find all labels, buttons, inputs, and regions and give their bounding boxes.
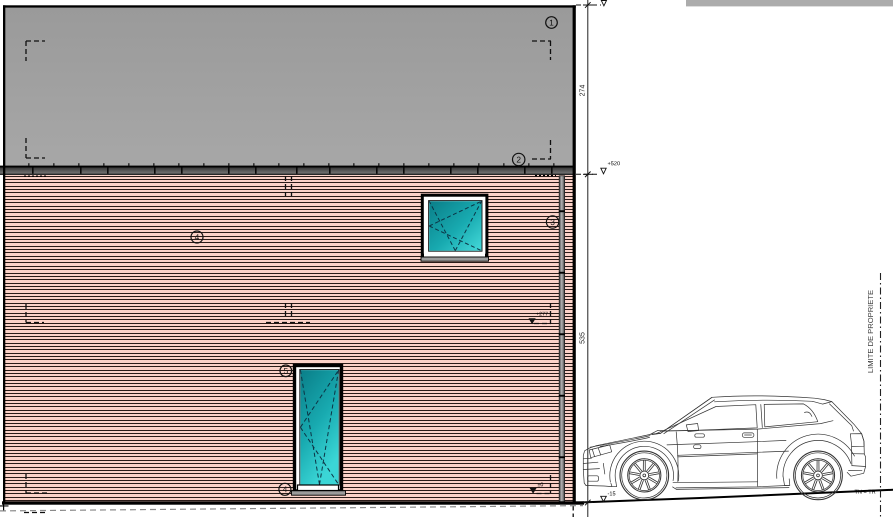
svg-text:+277: +277 xyxy=(536,312,548,318)
svg-text:-15: -15 xyxy=(607,491,615,497)
svg-text:4: 4 xyxy=(195,232,200,242)
svg-text:535: 535 xyxy=(580,332,587,344)
svg-text:3: 3 xyxy=(550,217,555,227)
svg-text:2: 2 xyxy=(516,154,521,164)
svg-text:4: 4 xyxy=(283,484,288,494)
svg-text:±0: ±0 xyxy=(537,482,543,488)
svg-text:+520: +520 xyxy=(607,161,620,167)
svg-text:LIMITE DE PROPRIETE: LIMITE DE PROPRIETE xyxy=(866,290,875,373)
svg-text:5: 5 xyxy=(283,366,288,376)
svg-text:TN = TR: TN = TR xyxy=(854,490,875,496)
svg-text:1: 1 xyxy=(549,17,554,27)
svg-text:274: 274 xyxy=(580,85,587,97)
